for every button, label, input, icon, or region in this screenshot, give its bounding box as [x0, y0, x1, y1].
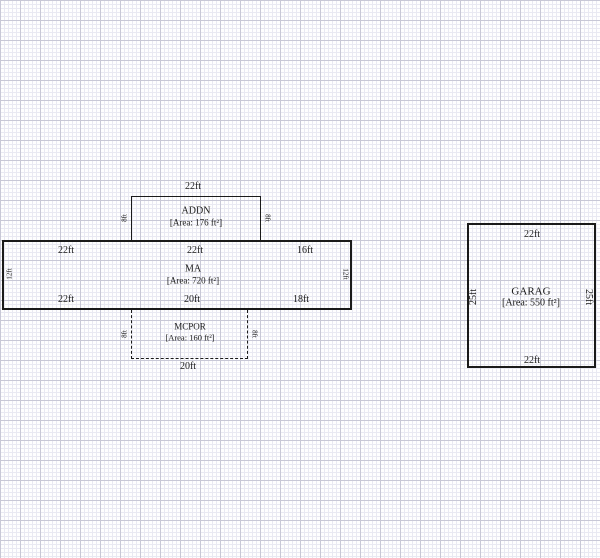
mcpor-dim-bottom: 20ft — [180, 362, 196, 372]
ma-dim-left: 12ft — [7, 268, 14, 279]
garag-dim-left: 25ft — [469, 289, 479, 305]
addn-namecard: ADDN [Area: 176 ft²] — [170, 206, 222, 229]
garag-area-label: [Area: 550 ft²] — [502, 298, 560, 309]
addn-dim-left: 8ft — [122, 214, 129, 222]
ma-dim-top-3: 16ft — [297, 246, 313, 256]
garag-dim-bottom: 22ft — [524, 356, 540, 366]
ma-namecard: MA [Area: 720 ft²] — [167, 264, 219, 287]
garag-dim-right: 25ft — [583, 289, 593, 305]
mcpor-dim-left: 8ft — [122, 330, 129, 338]
ma-name-label: MA — [167, 264, 219, 276]
garag-dim-top: 22ft — [524, 230, 540, 240]
mcpor-name-label: MCPOR — [165, 321, 214, 333]
mcpor-namecard: MCPOR [Area: 160 ft²] — [165, 321, 214, 344]
ma-area-label: [Area: 720 ft²] — [167, 276, 219, 287]
mcpor-area-label: [Area: 160 ft²] — [165, 333, 214, 344]
ma-dim-bottom-1: 22ft — [58, 295, 74, 305]
sketch-canvas: 22ft 8ft 8ft ADDN [Area: 176 ft²] 22ft 2… — [0, 0, 600, 558]
addn-area-label: [Area: 176 ft²] — [170, 218, 222, 229]
ma-dim-right: 12ft — [342, 268, 349, 279]
garag-namecard: GARAG [Area: 550 ft²] — [502, 286, 560, 309]
ma-dim-top-1: 22ft — [58, 246, 74, 256]
addn-dim-top: 22ft — [185, 182, 201, 192]
garag-name-label: GARAG — [502, 286, 560, 298]
mcpor-dim-right: 8ft — [251, 330, 258, 338]
ma-dim-bottom-2: 20ft — [184, 295, 200, 305]
addn-dim-right: 8ft — [264, 214, 271, 222]
ma-dim-top-2: 22ft — [187, 246, 203, 256]
addn-name-label: ADDN — [170, 206, 222, 218]
ma-dim-bottom-3: 18ft — [293, 295, 309, 305]
